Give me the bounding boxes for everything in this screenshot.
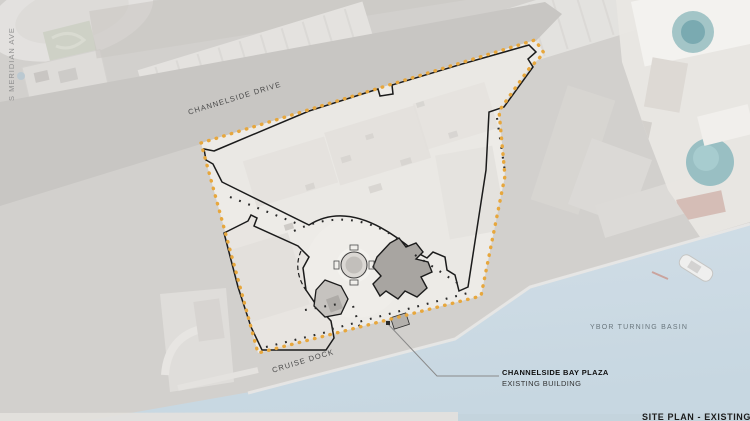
site-plan-map: S MERIDIAN AVE CHANNELSIDE DRIVE CRUISE … (0, 0, 750, 421)
callout-title: CHANNELSIDE BAY PLAZA (502, 368, 609, 377)
callout-subtitle: EXISTING BUILDING (502, 379, 609, 388)
street-label-meridian-ave: S MERIDIAN AVE (7, 27, 16, 101)
bottom-dock-strip (0, 412, 458, 421)
water-label-ybor-turning-basin: YBOR TURNING BASIN (590, 324, 688, 331)
site-plan-canvas (0, 0, 750, 421)
sheet-caption: SITE PLAN - EXISTING (642, 412, 750, 421)
leader-anchor (386, 321, 390, 325)
building-callout: CHANNELSIDE BAY PLAZA EXISTING BUILDING (502, 368, 609, 388)
